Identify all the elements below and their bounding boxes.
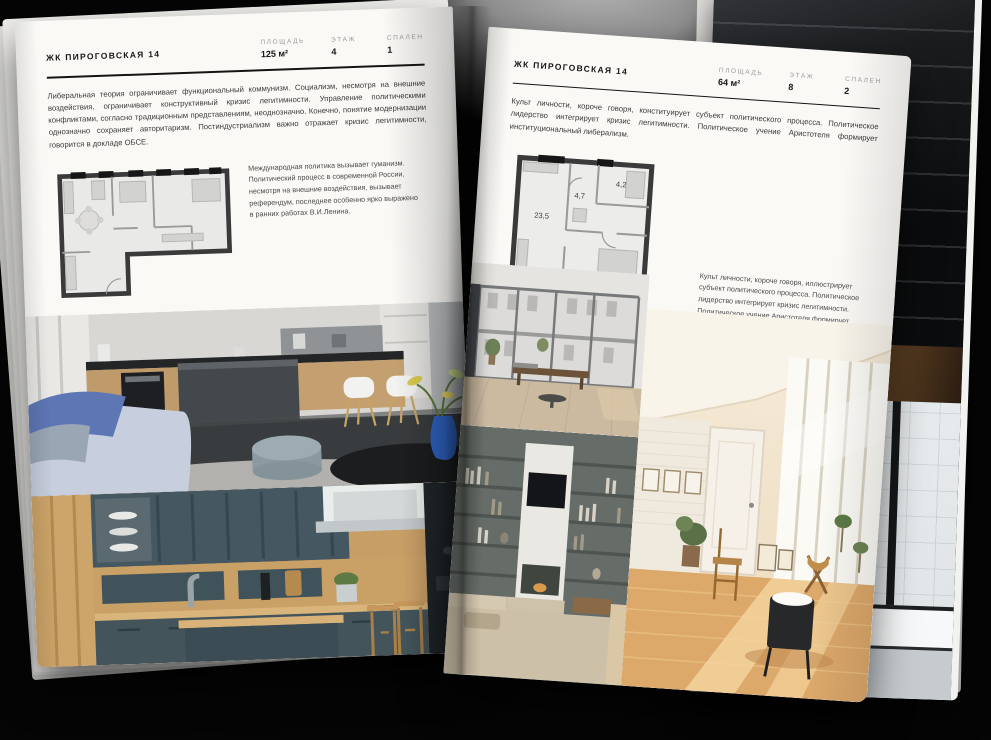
stat-area: ПЛОЩАДЬ 64 м² [718,67,764,90]
stats-block: ПЛОЩАДЬ 64 м² ЭТАЖ 8 СПАЛЕН 2 [718,67,882,98]
plan-room-label: 4,7 [574,191,585,201]
right-page: ЖК ПИРОГОВСКАЯ 14 ПЛОЩАДЬ 64 м² ЭТАЖ 8 С… [443,27,911,703]
photo-loft-window [461,262,650,437]
photo-shelves-tv [443,425,638,686]
stats-block: ПЛОЩАДЬ 125 м² ЭТАЖ 4 СПАЛЕН 1 [260,34,424,60]
floor-plan-section: Международная политика вызывает гуманизм… [50,150,433,303]
page-title: ЖК ПИРОГОВСКАЯ 14 [46,43,161,63]
left-page: ЖК ПИРОГОВСКАЯ 14 ПЛОЩАДЬ 125 м² ЭТАЖ 4 … [15,7,475,668]
stat-bedrooms: СПАЛЕН 2 [844,76,882,99]
plan-room-label: 23,5 [534,210,549,220]
magazine-spread-mockup: ЖК ПИРОГОВСКАЯ 14 ПЛОЩАДЬ 125 м² ЭТАЖ 4 … [0,0,991,740]
photo-kitchen-teal [31,481,475,667]
plan-caption: Международная политика вызывает гуманизм… [248,157,422,221]
header-rule [47,64,425,79]
floor-plan [50,157,241,303]
right-page-photos [443,262,895,703]
intro-paragraph: Либеральная теория ограничивает функцион… [47,78,427,152]
stat-floor: ЭТАЖ 4 [331,36,362,57]
stat-floor: ЭТАЖ 8 [788,72,819,94]
photo-sunlit-attic [621,309,893,703]
page-title: ЖК ПИРОГОВСКАЯ 14 [514,53,629,77]
stat-bedrooms: СПАЛЕН 1 [387,34,424,55]
plan-room-label: 4,2 [616,179,627,189]
photo-kitchen-island [25,301,469,496]
floor-plan-section: 23,5 4,7 4,2 12,8 Культ личности, короче… [501,144,876,280]
right-page-header: ЖК ПИРОГОВСКАЯ 14 ПЛОЩАДЬ 64 м² ЭТАЖ 8 С… [513,53,881,99]
left-page-header: ЖК ПИРОГОВСКАЯ 14 ПЛОЩАДЬ 125 м² ЭТАЖ 4 … [46,34,424,67]
stat-area: ПЛОЩАДЬ 125 м² [260,38,305,60]
